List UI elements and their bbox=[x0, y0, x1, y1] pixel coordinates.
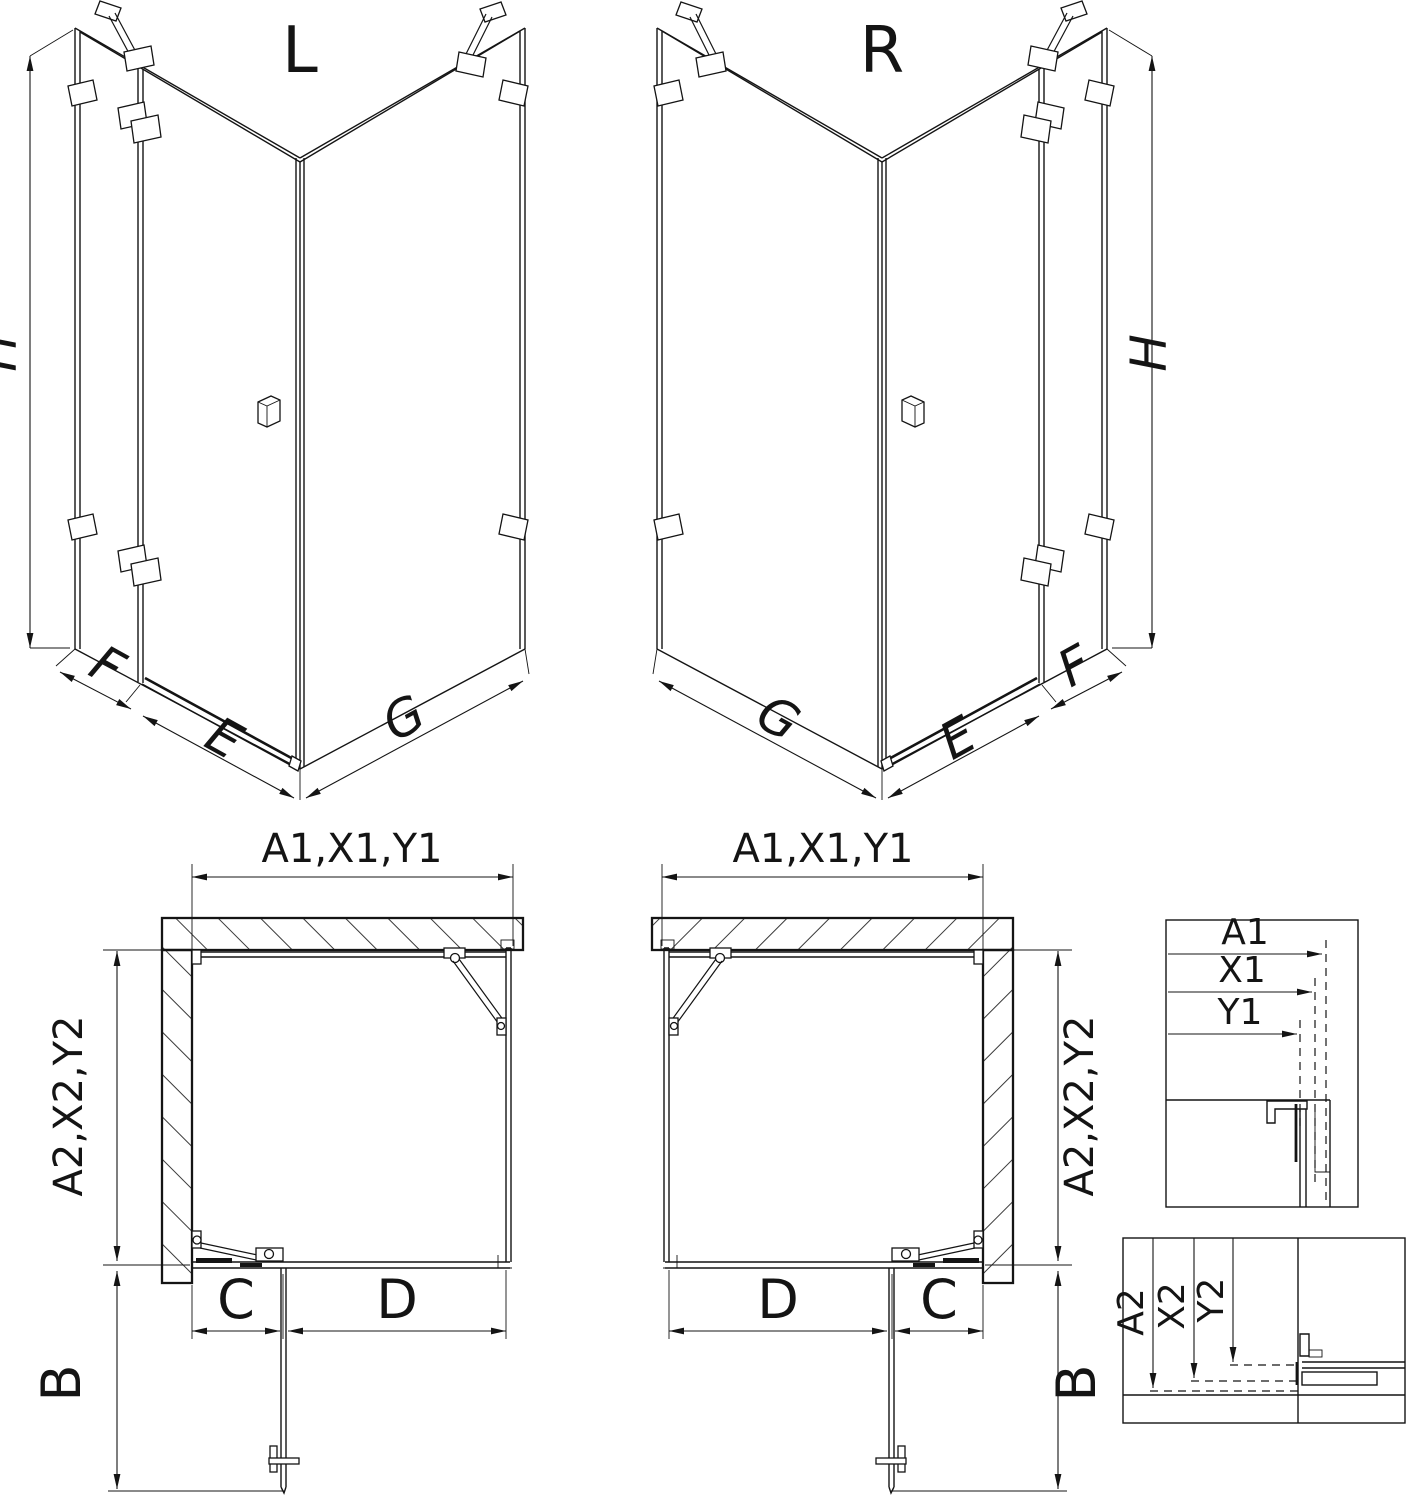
iso-right-title-label: R bbox=[860, 14, 904, 88]
detail-y1-label: Y1 bbox=[1217, 992, 1263, 1033]
plan-left-c-dimension-label: C bbox=[217, 1268, 255, 1331]
plan-left-top-dimension-label: A1,X1,Y1 bbox=[262, 826, 443, 872]
plan-right-c-dimension-label: C bbox=[920, 1268, 958, 1331]
detail-x1-label: X1 bbox=[1218, 950, 1266, 991]
detail-a1-label: A1 bbox=[1221, 912, 1269, 953]
plan-right-b-dimension-label: B bbox=[1045, 1364, 1108, 1401]
detail-a2-label: A2 bbox=[1111, 1288, 1152, 1336]
plan-left-side-dimension-label: A2,X2,Y2 bbox=[46, 1016, 92, 1197]
iso-left-title-label: L bbox=[282, 14, 318, 88]
iso-left-h-dimension-label: H bbox=[0, 334, 28, 372]
plan-left-d-dimension-label: D bbox=[376, 1268, 418, 1331]
diagram-canvas: L H F E G R H G E F A1,X1,Y1 A2,X2,Y2 C … bbox=[0, 0, 1410, 1502]
plan-left-b-dimension-label: B bbox=[30, 1364, 93, 1401]
detail-x2-label: X2 bbox=[1152, 1282, 1193, 1330]
plan-right-side-dimension-label: A2,X2,Y2 bbox=[1057, 1016, 1103, 1197]
iso-right-h-dimension-label: H bbox=[1120, 334, 1178, 372]
plan-right-d-dimension-label: D bbox=[757, 1268, 799, 1331]
plan-right-top-dimension-label: A1,X1,Y1 bbox=[733, 826, 914, 872]
detail-y2-label: Y2 bbox=[1191, 1278, 1232, 1324]
shower-enclosure-technical-diagram: L H F E G R H G E F A1,X1,Y1 A2,X2,Y2 C … bbox=[0, 0, 1410, 1502]
